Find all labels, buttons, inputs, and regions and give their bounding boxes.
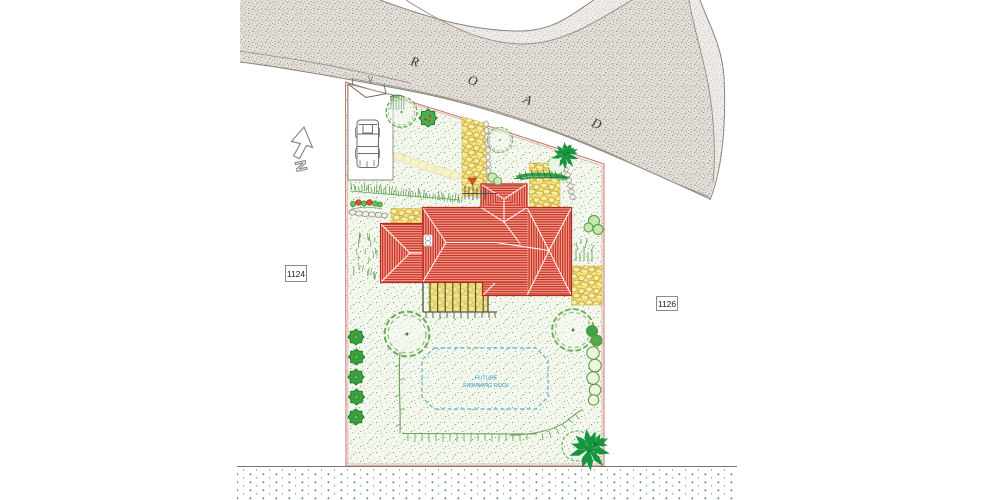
svg-text:1124: 1124 — [287, 269, 306, 279]
svg-text:1126: 1126 — [658, 299, 677, 309]
svg-text:SWIMMING POOL: SWIMMING POOL — [463, 383, 510, 389]
svg-text:FUTURE: FUTURE — [475, 376, 498, 382]
